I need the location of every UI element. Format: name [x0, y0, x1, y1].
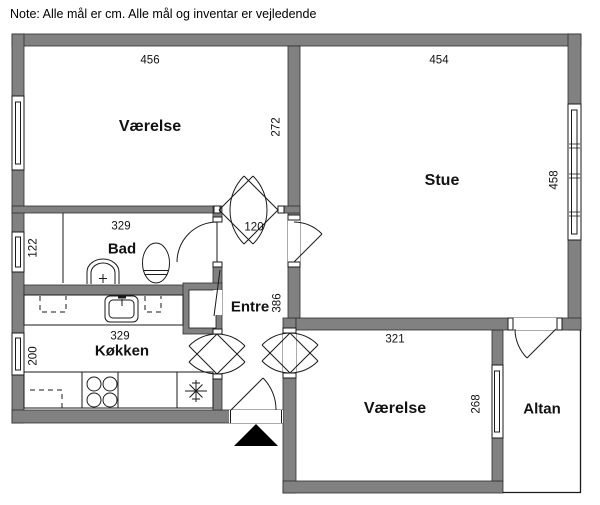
- wall-center-divider: [288, 46, 300, 318]
- door-jamb-cap: [288, 215, 300, 220]
- passage-door-swing: [219, 176, 267, 210]
- stove-burner: [103, 393, 117, 407]
- window-bedroom1-inner: [16, 102, 21, 164]
- label-bedroom2: Værelse: [364, 401, 426, 417]
- bath-sink-tap: [99, 274, 107, 283]
- dim-entre-depth: 386: [272, 293, 284, 312]
- label-bedroom1: Værelse: [119, 119, 181, 135]
- dim-stue-depth: 458: [549, 170, 561, 189]
- kitchen-door-swing: [189, 334, 217, 374]
- label-kitchen: Køkken: [95, 344, 149, 359]
- dim-bedroom2-depth: 268: [471, 394, 483, 413]
- kitchen-door-opening: [213, 334, 222, 374]
- stove-burner: [87, 393, 101, 407]
- dim-kitchen-width: 329: [110, 331, 129, 343]
- door-jamb-cap: [213, 374, 222, 379]
- kitchen-sink-tap: [118, 295, 126, 299]
- wall-bath-bottom: [24, 285, 189, 295]
- toilet: [143, 243, 170, 283]
- label-stue: Stue: [425, 173, 460, 189]
- label-entre: Entre: [231, 300, 269, 315]
- label-balcony: Altan: [523, 402, 561, 417]
- closet-interior: [189, 290, 216, 328]
- window-kitchen-inner: [16, 338, 21, 370]
- kitchen-door-swing: [189, 334, 217, 374]
- door-jamb-cap: [288, 262, 300, 267]
- balcony-door-opening: [513, 318, 557, 330]
- entrance-door-swing: [231, 378, 276, 410]
- door-jamb-cap: [508, 318, 513, 330]
- entrance-door-opening: [229, 410, 283, 423]
- dim-bath-width: 329: [111, 221, 130, 233]
- label-bath: Bad: [108, 242, 136, 257]
- dim-bath-depth: 122: [28, 238, 40, 257]
- dim-entre-passage: 120: [244, 222, 263, 234]
- entrance-arrow-icon: [234, 424, 278, 446]
- bath-door-swing: [177, 222, 217, 262]
- wall-outer-top: [12, 34, 581, 46]
- door-jamb-cap: [278, 206, 284, 213]
- wall-bedroom1-bottom: [12, 206, 219, 213]
- dim-bedroom1-width: 456: [140, 55, 159, 67]
- passage-door-swing: [230, 176, 278, 210]
- balcony-door-swing: [515, 329, 556, 358]
- dim-stue-width: 454: [429, 55, 448, 67]
- stue-door-opening: [288, 220, 300, 262]
- door-jamb-cap: [283, 328, 296, 333]
- note-text: Note: Alle mål er cm. Alle mål og invent…: [10, 7, 316, 21]
- door-jamb-cap: [213, 329, 222, 334]
- window-stue-inner: [572, 110, 578, 234]
- door-jambs: [213, 206, 562, 379]
- floor-plan-canvas: Note: Alle mål er cm. Alle mål og invent…: [0, 0, 600, 505]
- bedroom2-door-opening: [283, 333, 296, 373]
- door-jamb-cap: [283, 373, 296, 378]
- window-bath-inner: [16, 237, 21, 267]
- window-bedroom2-inner: [495, 371, 500, 432]
- dim-kitchen-depth: 200: [28, 346, 40, 365]
- stove-burner: [103, 377, 117, 391]
- door-jamb-cap: [557, 318, 562, 330]
- wall-bedroom2-bottom: [283, 481, 503, 493]
- dim-bedroom1-depth: 272: [271, 117, 283, 136]
- dim-bedroom2-width: 321: [385, 334, 404, 346]
- door-jamb-cap: [213, 217, 222, 222]
- kitchen-counter-upper: [24, 295, 183, 325]
- stove-burner: [87, 377, 101, 391]
- floor-plan-graphic: [0, 0, 600, 505]
- door-jamb-cap: [213, 262, 222, 267]
